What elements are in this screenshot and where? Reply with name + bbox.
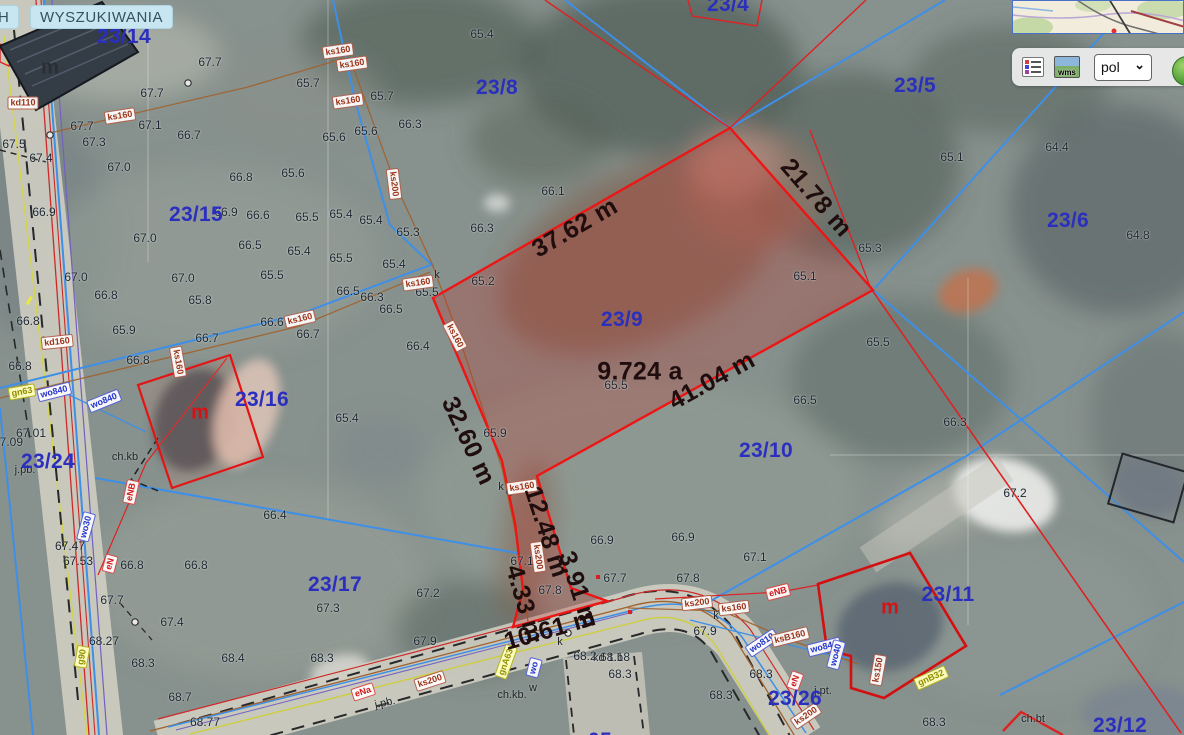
parcel-label-23-16[interactable]: 23/16 bbox=[235, 388, 289, 412]
map-toolbar: wms pol ⌄ bbox=[1012, 48, 1184, 86]
elevation-label: 67.7 bbox=[603, 571, 626, 585]
tab-search-label: WYSZUKIWANIA bbox=[40, 9, 163, 26]
elevation-label: 65.1 bbox=[793, 269, 816, 283]
elevation-label: 65.8 bbox=[188, 293, 211, 307]
measurement-label: 32.60 m bbox=[435, 392, 501, 489]
elevation-label: 67.47 bbox=[55, 539, 85, 553]
elevation-label: 66.8 bbox=[184, 558, 207, 572]
surface-label: j.pb. bbox=[374, 695, 397, 711]
elevation-label: 65.6 bbox=[322, 130, 345, 144]
elevation-label: 67.2 bbox=[1003, 486, 1026, 500]
utility-label-eNa: eNa bbox=[350, 682, 375, 701]
elevation-label: 67.0 bbox=[133, 231, 156, 245]
elevation-label: 67.7 bbox=[70, 119, 93, 133]
elevation-label: 65.5 bbox=[866, 335, 889, 349]
utility-label-kd160: kd160 bbox=[41, 334, 74, 350]
elevation-label: 66.3 bbox=[470, 221, 493, 235]
measurement-label: 9.724 a bbox=[597, 358, 683, 387]
elevation-label: 68.3 bbox=[749, 667, 772, 681]
tab-partial[interactable]: H bbox=[0, 5, 19, 29]
utility-label-wo30: wo30 bbox=[76, 512, 96, 543]
elevation-label: 66.8 bbox=[8, 359, 31, 373]
parcel-label-23-4[interactable]: 23/4 bbox=[707, 0, 749, 17]
surface-label: kd 1.b bbox=[593, 652, 623, 664]
elevation-label: 65.3 bbox=[396, 225, 419, 239]
elevation-label: 67.8 bbox=[538, 583, 561, 597]
elevation-label: 67.0 bbox=[107, 160, 130, 174]
surface-label: k bbox=[498, 481, 504, 493]
surface-label: w bbox=[529, 682, 537, 694]
utility-label-ks150: ks150 bbox=[869, 654, 887, 687]
elevation-label: 65.5 bbox=[295, 210, 318, 224]
elevation-label: 66.7 bbox=[177, 128, 200, 142]
measurement-label: 21.78 m bbox=[774, 153, 857, 243]
elevation-label: 68.7 bbox=[168, 690, 191, 704]
elevation-label: 66.3 bbox=[943, 415, 966, 429]
overview-minimap[interactable] bbox=[1012, 0, 1184, 34]
parcel-label-23-15[interactable]: 23/15 bbox=[169, 203, 223, 227]
elevation-label: 66.8 bbox=[94, 288, 117, 302]
utility-label-ks160: ks160 bbox=[169, 346, 187, 379]
utility-label-eN: eN bbox=[101, 554, 118, 574]
parcel-label-23-8[interactable]: 23/8 bbox=[476, 76, 518, 100]
elevation-label: 67.9 bbox=[413, 634, 436, 648]
elevation-label: 68.77 bbox=[190, 715, 220, 729]
elevation-label: 65.4 bbox=[329, 207, 352, 221]
elevation-label: 66.5 bbox=[336, 284, 359, 298]
elevation-label: 67.5 bbox=[2, 137, 25, 151]
utility-label-ks200: ks200 bbox=[681, 595, 713, 612]
elevation-label: 65.6 bbox=[281, 166, 304, 180]
elevation-label: 66.7 bbox=[296, 327, 319, 341]
elevation-label: 65.2 bbox=[471, 274, 494, 288]
elevation-label: 65.9 bbox=[483, 426, 506, 440]
utility-label-ksB160: ksB160 bbox=[770, 626, 810, 648]
utility-label-gnB32: gnB32 bbox=[913, 665, 949, 691]
utility-label-ks160: ks160 bbox=[104, 107, 137, 125]
elevation-label: 65.4 bbox=[382, 257, 405, 271]
parcel-label-05[interactable]: 05 bbox=[588, 729, 612, 735]
elevation-label: 67.3 bbox=[316, 601, 339, 615]
elevation-label: 67.7 bbox=[198, 55, 221, 69]
elevation-label: 66.8 bbox=[126, 353, 149, 367]
elevation-label: 66.6 bbox=[246, 208, 269, 222]
utility-label-ks200: ks200 bbox=[386, 168, 403, 200]
elevation-label: 67.0 bbox=[64, 270, 87, 284]
house-label-m: m bbox=[191, 402, 209, 425]
utility-label-ks160: ks160 bbox=[718, 600, 750, 617]
utility-label-ks200: ks200 bbox=[413, 670, 447, 692]
measurement-label: 37.62 m bbox=[527, 192, 623, 264]
elevation-label: 66.8 bbox=[120, 558, 143, 572]
elevation-label: 67.0 bbox=[171, 271, 194, 285]
elevation-label: 65.4 bbox=[359, 213, 382, 227]
elevation-label: 66.8 bbox=[229, 170, 252, 184]
utility-label-g90: g90 bbox=[74, 645, 91, 668]
elevation-label: 65.6 bbox=[354, 124, 377, 138]
elevation-label: 66.9 bbox=[671, 530, 694, 544]
utility-label-gn63: gn63 bbox=[8, 383, 37, 400]
elevation-label: 66.4 bbox=[406, 339, 429, 353]
elevation-label: 66.5 bbox=[793, 393, 816, 407]
elevation-label: 68.3 bbox=[310, 651, 333, 665]
elevation-label: 65.4 bbox=[335, 411, 358, 425]
elevation-label: 67.9 bbox=[693, 624, 716, 638]
elevation-label: 67.8 bbox=[676, 571, 699, 585]
elevation-label: 65.9 bbox=[112, 323, 135, 337]
elevation-label: 67.4 bbox=[160, 615, 183, 629]
elevation-label: 65.1 bbox=[940, 150, 963, 164]
map-viewport[interactable]: 67.767.765.467.767.166.767.367.567.467.0… bbox=[0, 0, 1184, 735]
parcel-label-23-5[interactable]: 23/5 bbox=[894, 74, 936, 98]
parcel-label-23-6[interactable]: 23/6 bbox=[1047, 209, 1089, 233]
elevation-label: 65.7 bbox=[296, 76, 319, 90]
utility-label-ks160: ks160 bbox=[332, 92, 365, 109]
elevation-label: 65.4 bbox=[470, 27, 493, 41]
elevation-label: 67.3 bbox=[82, 135, 105, 149]
language-value: pol bbox=[1101, 59, 1120, 75]
elevation-label: 67.2 bbox=[416, 586, 439, 600]
elevation-label: 67.7 bbox=[100, 593, 123, 607]
elevation-label: 66.6 bbox=[260, 315, 283, 329]
elevation-label: 66.4 bbox=[263, 508, 286, 522]
elevation-label: 66.9 bbox=[32, 205, 55, 219]
house-label-m: m bbox=[41, 57, 59, 80]
elevation-label: 67.09 bbox=[0, 435, 23, 449]
elevation-label: 67.1 bbox=[743, 550, 766, 564]
elevation-label: 65.3 bbox=[858, 241, 881, 255]
elevation-label: 65.5 bbox=[260, 268, 283, 282]
surface-label: k bbox=[434, 269, 440, 281]
minimap-graphic bbox=[1013, 1, 1184, 34]
elevation-label: 68.3 bbox=[608, 667, 631, 681]
elevation-label: 68.27 bbox=[89, 634, 119, 648]
elevation-label: 66.1 bbox=[541, 184, 564, 198]
elevation-label: 65.5 bbox=[329, 251, 352, 265]
elevation-label: 68.3 bbox=[131, 656, 154, 670]
utility-label-kd110: kd110 bbox=[7, 97, 38, 110]
tab-partial-label: H bbox=[0, 9, 9, 26]
elevation-label: 68.3 bbox=[922, 715, 945, 729]
utility-label-wo840: wo840 bbox=[86, 389, 122, 414]
minimap-position-marker bbox=[1112, 29, 1117, 34]
elevation-label: 66.5 bbox=[379, 302, 402, 316]
utility-label-ks160: ks160 bbox=[336, 55, 369, 72]
parcel-label-23-9[interactable]: 23/9 bbox=[601, 308, 643, 332]
utility-label-wo840: wo840 bbox=[36, 382, 72, 403]
elevation-label: 67.53 bbox=[63, 554, 93, 568]
parcel-label-23-11[interactable]: 23/11 bbox=[922, 583, 975, 607]
utility-label-eNB: eNB bbox=[122, 479, 140, 505]
utility-label-ks160: ks160 bbox=[442, 319, 468, 353]
elevation-label: 68.3 bbox=[709, 688, 732, 702]
map-label-layer: 67.767.765.467.767.166.767.367.567.467.0… bbox=[0, 0, 1184, 735]
house-label-m: m bbox=[881, 597, 899, 620]
parcel-label-23-26[interactable]: 23/26 bbox=[768, 687, 822, 711]
elevation-label: 66.7 bbox=[195, 331, 218, 345]
utility-label-ks160: ks160 bbox=[283, 309, 316, 329]
elevation-label: 64.8 bbox=[1126, 228, 1149, 242]
elevation-label: 66.8 bbox=[16, 314, 39, 328]
surface-label: ch.kb bbox=[112, 451, 138, 463]
elevation-label: 66.3 bbox=[398, 117, 421, 131]
utility-label-wo: wo bbox=[525, 657, 542, 678]
elevation-label: 66.9 bbox=[590, 533, 613, 547]
elevation-label: 67.7 bbox=[140, 86, 163, 100]
wms-button-label: wms bbox=[1058, 68, 1076, 77]
elevation-label: 66.5 bbox=[238, 238, 261, 252]
elevation-label: 68.4 bbox=[221, 651, 244, 665]
surface-label: ch.bt bbox=[1021, 713, 1045, 725]
wms-button[interactable]: wms bbox=[1054, 56, 1080, 78]
elevation-label: 65.4 bbox=[287, 244, 310, 258]
elevation-label: 67.1 bbox=[138, 118, 161, 132]
tab-wyszukiwania[interactable]: WYSZUKIWANIA bbox=[30, 5, 173, 29]
elevation-label: 67.4 bbox=[29, 151, 52, 165]
surface-label: ch.kb. bbox=[497, 689, 526, 701]
parcel-label-23-17[interactable]: 23/17 bbox=[308, 573, 362, 597]
elevation-label: 65.7 bbox=[370, 89, 393, 103]
utility-label-eNB: eNB bbox=[765, 583, 791, 601]
elevation-label: 64.4 bbox=[1045, 140, 1068, 154]
parcel-label-23-12[interactable]: 23/12 bbox=[1093, 714, 1147, 735]
language-select[interactable]: pol ⌄ bbox=[1094, 54, 1152, 81]
legend-button[interactable] bbox=[1022, 57, 1044, 77]
parcel-label-23-24[interactable]: 23/24 bbox=[21, 450, 75, 474]
chevron-down-icon: ⌄ bbox=[1134, 57, 1145, 73]
parcel-label-23-10[interactable]: 23/10 bbox=[739, 439, 793, 463]
